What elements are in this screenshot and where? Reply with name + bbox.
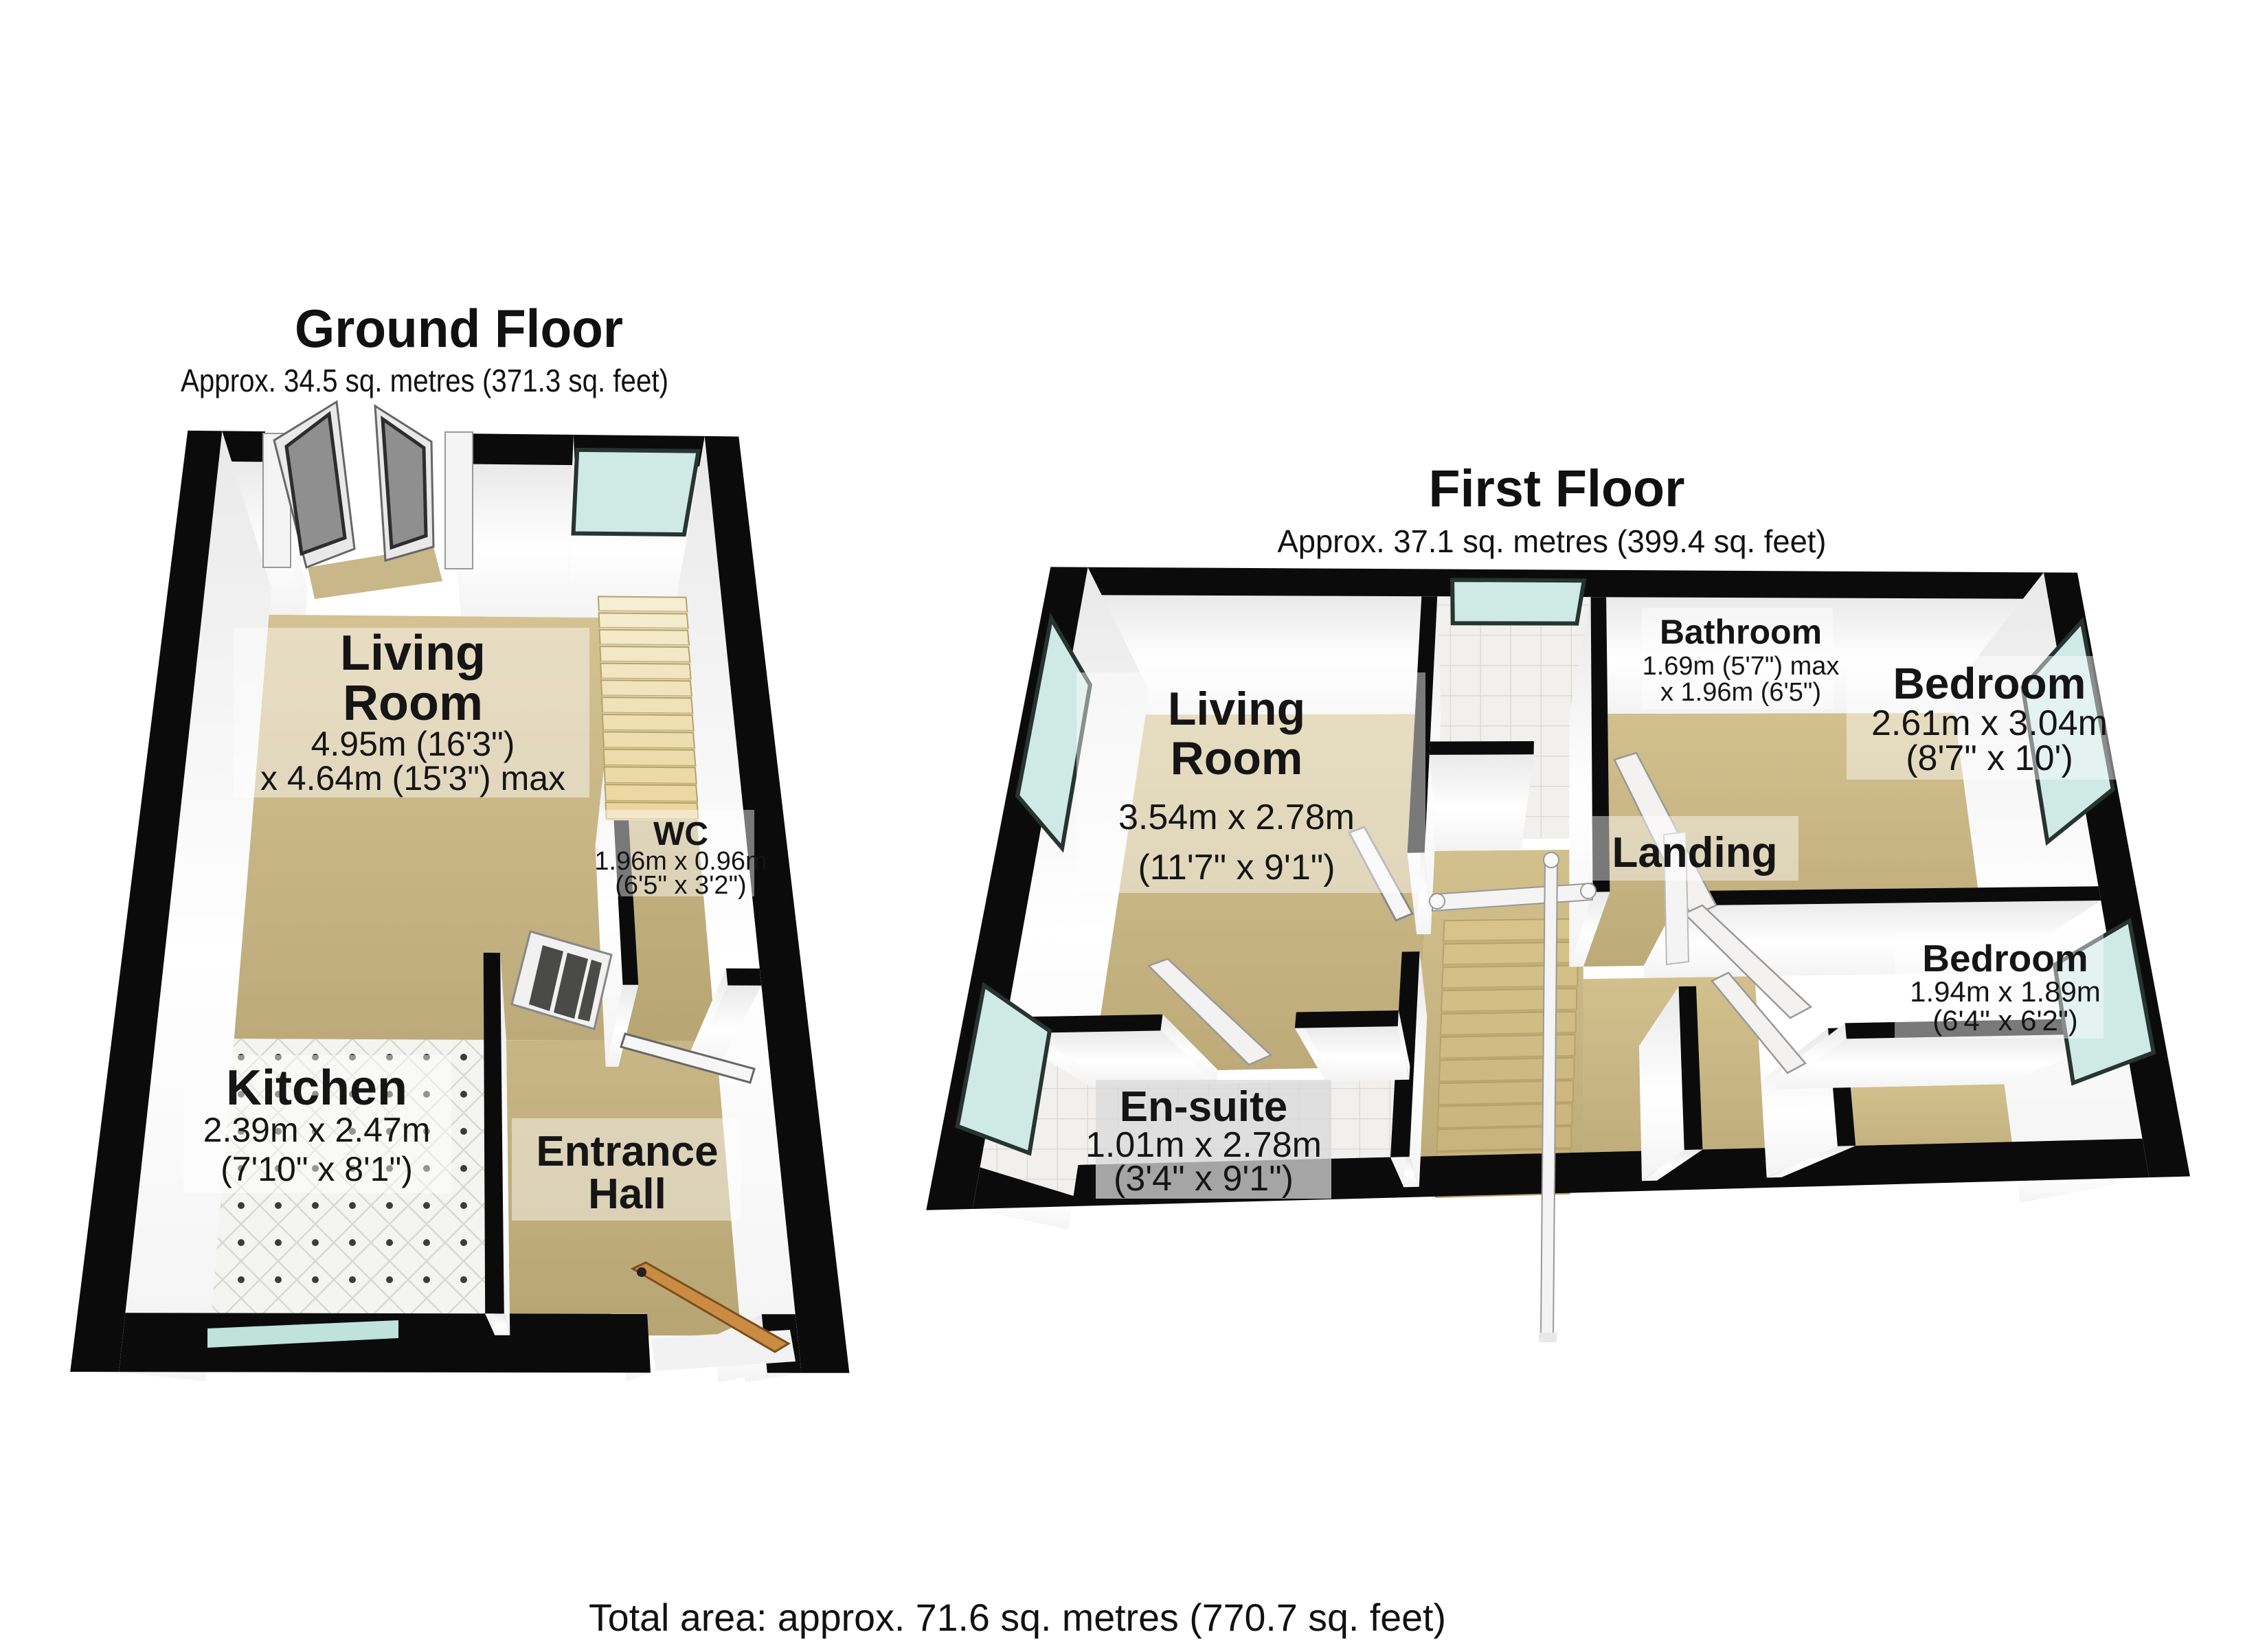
svg-text:Living: Living [1168, 683, 1305, 735]
svg-text:Landing: Landing [1612, 829, 1777, 876]
svg-text:Entrance: Entrance [536, 1128, 718, 1175]
svg-text:Bathroom: Bathroom [1660, 613, 1822, 651]
svg-text:(6'5" x 3'2"): (6'5" x 3'2") [615, 871, 746, 900]
svg-text:4.95m (16'3"): 4.95m (16'3") [311, 725, 515, 763]
svg-text:3.54m x 2.78m: 3.54m x 2.78m [1118, 797, 1355, 837]
svg-text:Approx. 37.1 sq. metres (399.4: Approx. 37.1 sq. metres (399.4 sq. feet) [1278, 523, 1827, 559]
svg-text:En-suite: En-suite [1120, 1083, 1288, 1131]
svg-text:x 4.64m (15'3") max: x 4.64m (15'3") max [260, 759, 565, 797]
svg-text:Bedroom: Bedroom [1893, 659, 2086, 708]
svg-text:Bedroom: Bedroom [1922, 937, 2088, 980]
svg-text:x 1.96m (6'5"): x 1.96m (6'5") [1660, 678, 1821, 707]
svg-text:Room: Room [1171, 732, 1303, 784]
svg-text:(3'4" x 9'1"): (3'4" x 9'1") [1114, 1159, 1294, 1199]
svg-text:2.39m x 2.47m: 2.39m x 2.47m [203, 1111, 431, 1149]
svg-text:1.69m (5'7") max: 1.69m (5'7") max [1643, 652, 1840, 681]
svg-text:Total area: approx. 71.6 sq. m: Total area: approx. 71.6 sq. metres (770… [589, 1596, 1446, 1639]
svg-text:(11'7" x 9'1"): (11'7" x 9'1") [1138, 848, 1335, 887]
svg-text:Hall: Hall [588, 1170, 666, 1218]
svg-text:Room: Room [343, 676, 483, 731]
svg-text:Approx. 34.5 sq. metres (371.3: Approx. 34.5 sq. metres (371.3 sq. feet) [181, 363, 668, 398]
svg-text:Living: Living [340, 626, 486, 681]
svg-text:(8'7" x 10'): (8'7" x 10') [1906, 738, 2073, 778]
svg-text:2.61m x 3.04m: 2.61m x 3.04m [1871, 703, 2108, 743]
svg-text:(6'4" x 6'2"): (6'4" x 6'2") [1932, 1004, 2078, 1037]
svg-text:(7'10" x 8'1"): (7'10" x 8'1") [221, 1150, 413, 1188]
svg-text:1.94m x 1.89m: 1.94m x 1.89m [1910, 975, 2101, 1008]
svg-text:First Floor: First Floor [1429, 460, 1685, 518]
svg-text:Ground Floor: Ground Floor [295, 298, 623, 359]
svg-text:Kitchen: Kitchen [226, 1061, 407, 1116]
